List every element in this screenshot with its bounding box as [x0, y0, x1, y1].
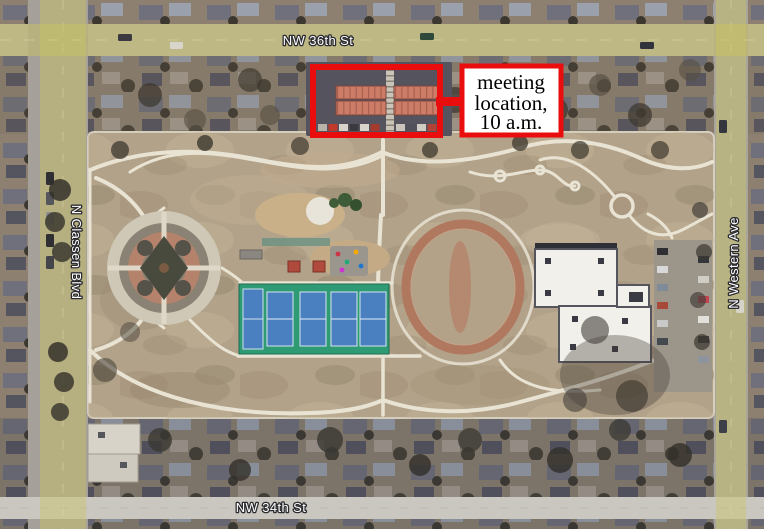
commercial-building	[88, 424, 140, 482]
map-canvas: NW 36th St NW 34th St N Classen Blvd N W…	[0, 0, 764, 529]
sports-courts	[239, 284, 389, 354]
label-n-classen-blvd: N Classen Blvd	[69, 205, 84, 299]
meeting-building-lot	[306, 62, 452, 136]
route-highlight-36th	[0, 24, 764, 56]
lot-parked-cars	[318, 124, 437, 131]
label-n-western-ave: N Western Ave	[726, 217, 741, 308]
annotated-aerial-map: NW 36th St NW 34th St N Classen Blvd N W…	[0, 0, 764, 529]
running-track	[406, 224, 520, 350]
label-nw-36th-st: NW 36th St	[283, 33, 353, 48]
callout-line-3: 10 a.m.	[480, 110, 542, 134]
circular-plaza	[107, 211, 221, 325]
label-nw-34th-st: NW 34th St	[236, 500, 306, 515]
